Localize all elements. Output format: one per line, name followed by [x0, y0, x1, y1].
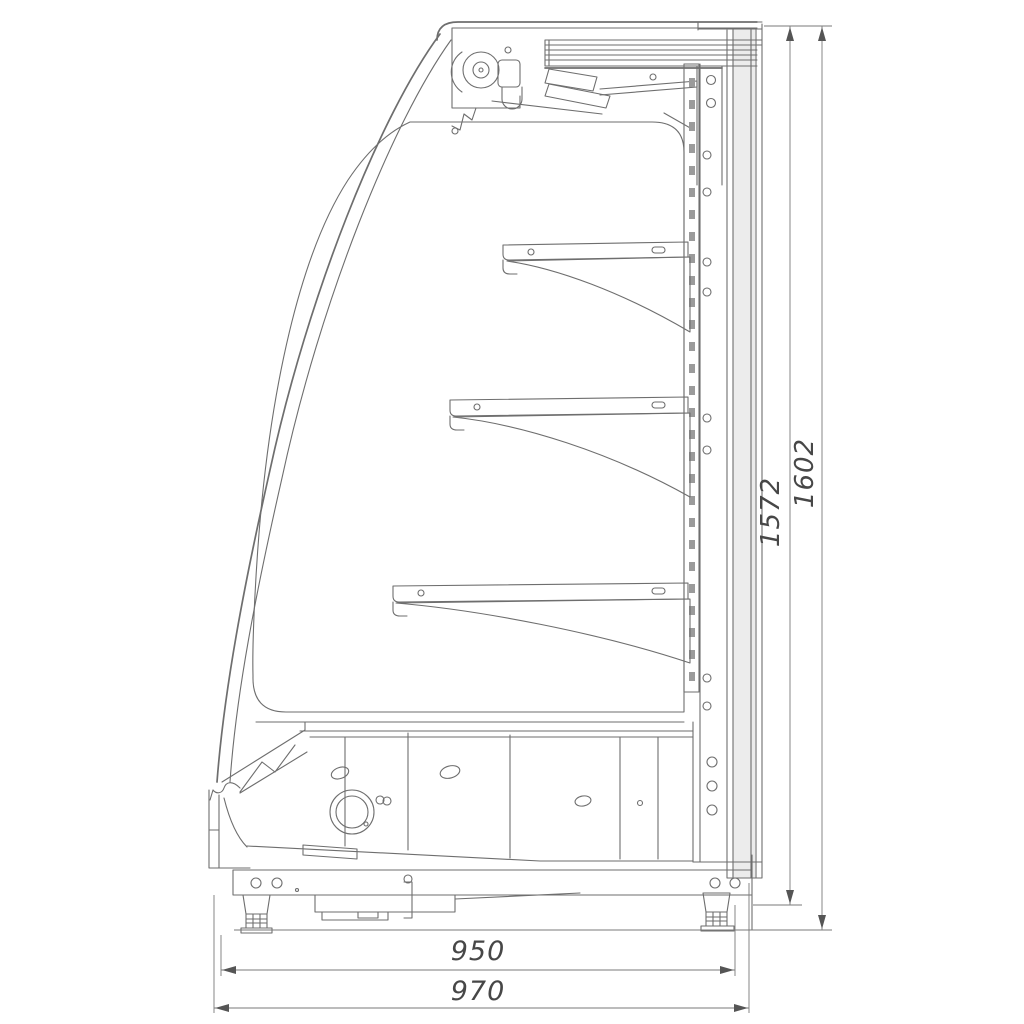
- hook-icon: [703, 151, 711, 159]
- glass-inner-curve: [230, 40, 451, 782]
- canopy-top-edge: [437, 22, 757, 40]
- rivet-icon: [650, 74, 656, 80]
- shelf-hooks: [703, 151, 711, 710]
- fan-dot: [364, 822, 368, 826]
- cutout-icon: [330, 765, 351, 781]
- shelf-slot: [652, 402, 665, 408]
- cord-weight: [452, 128, 458, 134]
- duct-rails: [545, 40, 762, 66]
- foot-outline: [701, 893, 734, 931]
- plinth: [233, 855, 752, 930]
- cutout-icon: [574, 795, 591, 808]
- shelf-screw: [418, 590, 424, 596]
- shelf-3: [393, 583, 690, 663]
- foot-outline: [241, 895, 272, 933]
- hole-icon: [730, 878, 740, 888]
- shelf-2: [450, 397, 690, 497]
- bracket-hole: [707, 99, 716, 108]
- dot-icon: [638, 801, 643, 806]
- shelf-screw: [528, 249, 534, 255]
- roller-bracket: [451, 52, 462, 92]
- air-deflector-a: [545, 69, 597, 91]
- front-lower-panel: [209, 790, 250, 868]
- base-details: [330, 764, 643, 808]
- shelf-screw: [474, 404, 480, 410]
- hook-icon: [703, 288, 711, 296]
- hole-icon: [272, 878, 282, 888]
- dimension-label-total-height: 1602: [790, 438, 820, 508]
- fan-inner: [336, 796, 368, 828]
- shelf-slot: [652, 588, 665, 594]
- blind-pull-cord: [452, 108, 476, 130]
- hook-icon: [703, 258, 711, 266]
- roller-inner: [473, 62, 489, 78]
- dimension-label-total-depth: 970: [451, 976, 506, 1007]
- back-panel-screws: [707, 757, 717, 815]
- air-deflector-b: [545, 84, 610, 108]
- leveling-foot-front: [241, 895, 272, 933]
- bracket-hole: [707, 76, 716, 85]
- fan-opening: [330, 790, 374, 834]
- dimension-label-inner-depth: 950: [451, 936, 506, 967]
- drain-pan-outline: [315, 882, 580, 920]
- base-compartment: [209, 722, 752, 933]
- leveling-foot-rear: [701, 893, 734, 931]
- glass-front: [217, 34, 451, 782]
- base-frame-lines: [310, 722, 693, 862]
- blind-handle: [498, 60, 520, 87]
- shelf-slot: [652, 247, 665, 253]
- cutout-icon: [439, 764, 461, 781]
- back-panel-fill: [733, 28, 755, 878]
- shelf-1: [503, 242, 690, 332]
- screw-icon: [707, 805, 717, 815]
- shelf-bracket: [396, 599, 690, 663]
- display-case-side-section: 1572 1602 950 970: [0, 0, 1024, 1024]
- blind-guide: [502, 87, 522, 109]
- front-bumper: [210, 722, 307, 847]
- dot-icon: [296, 889, 299, 892]
- drain-pan: [315, 875, 580, 920]
- hole-icon: [710, 878, 720, 888]
- hook-icon: [703, 674, 711, 682]
- hook-icon: [703, 414, 711, 422]
- hole-icon: [251, 878, 261, 888]
- roller-axle: [479, 68, 483, 72]
- screw-icon: [707, 757, 717, 767]
- interior-liner: [253, 122, 693, 731]
- hook-icon: [703, 702, 711, 710]
- base-bottom-slope: [247, 845, 693, 861]
- fan-outer: [330, 790, 374, 834]
- shelf-bracket: [507, 257, 690, 332]
- night-blind-roller: [451, 52, 499, 92]
- technical-drawing: 1572 1602 950 970: [0, 0, 1024, 1024]
- dimension-label-inner-height: 1572: [756, 477, 786, 547]
- air-vane: [600, 81, 697, 95]
- shelf-bracket: [453, 413, 690, 497]
- roller-outer: [463, 52, 499, 88]
- plinth-holes: [251, 878, 740, 892]
- hook-icon: [703, 188, 711, 196]
- glass-outer-curve: [217, 34, 440, 782]
- hook-icon: [703, 446, 711, 454]
- screw-icon: [707, 781, 717, 791]
- liner-floor-lines: [256, 722, 693, 731]
- bolt-icon: [505, 47, 511, 53]
- top-air-duct: [545, 40, 762, 185]
